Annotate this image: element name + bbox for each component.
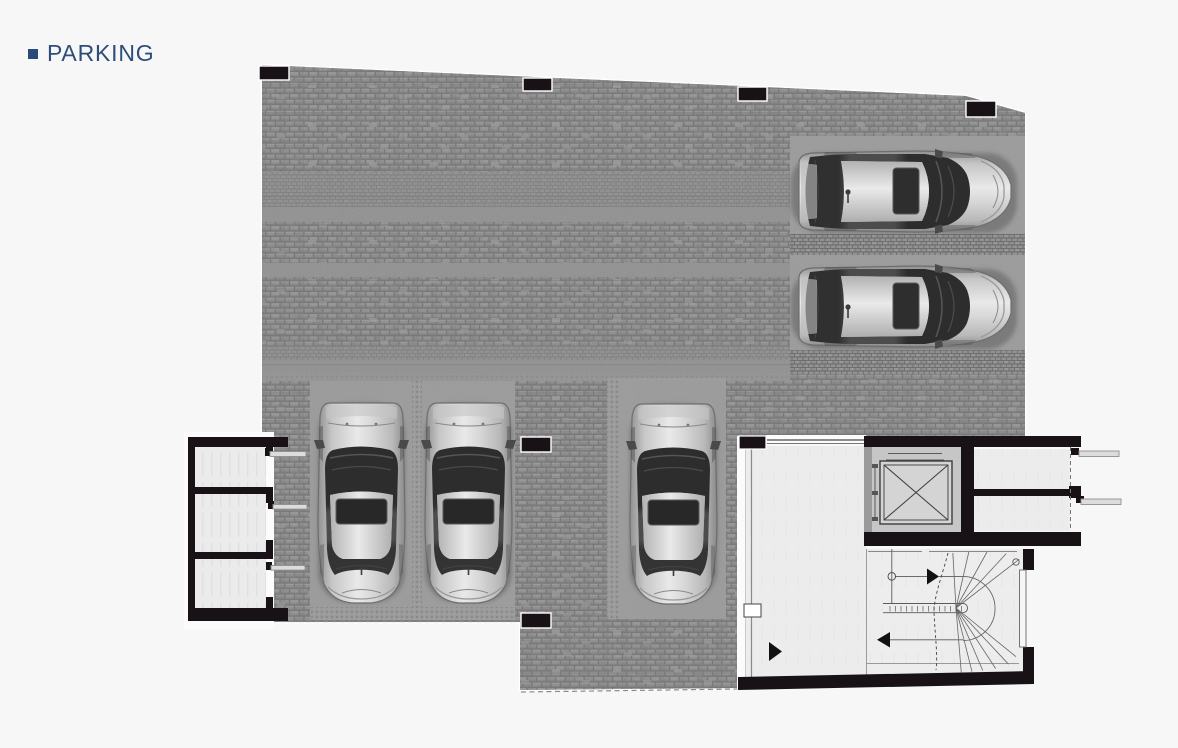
svg-text:PARKING: PARKING	[47, 40, 154, 66]
